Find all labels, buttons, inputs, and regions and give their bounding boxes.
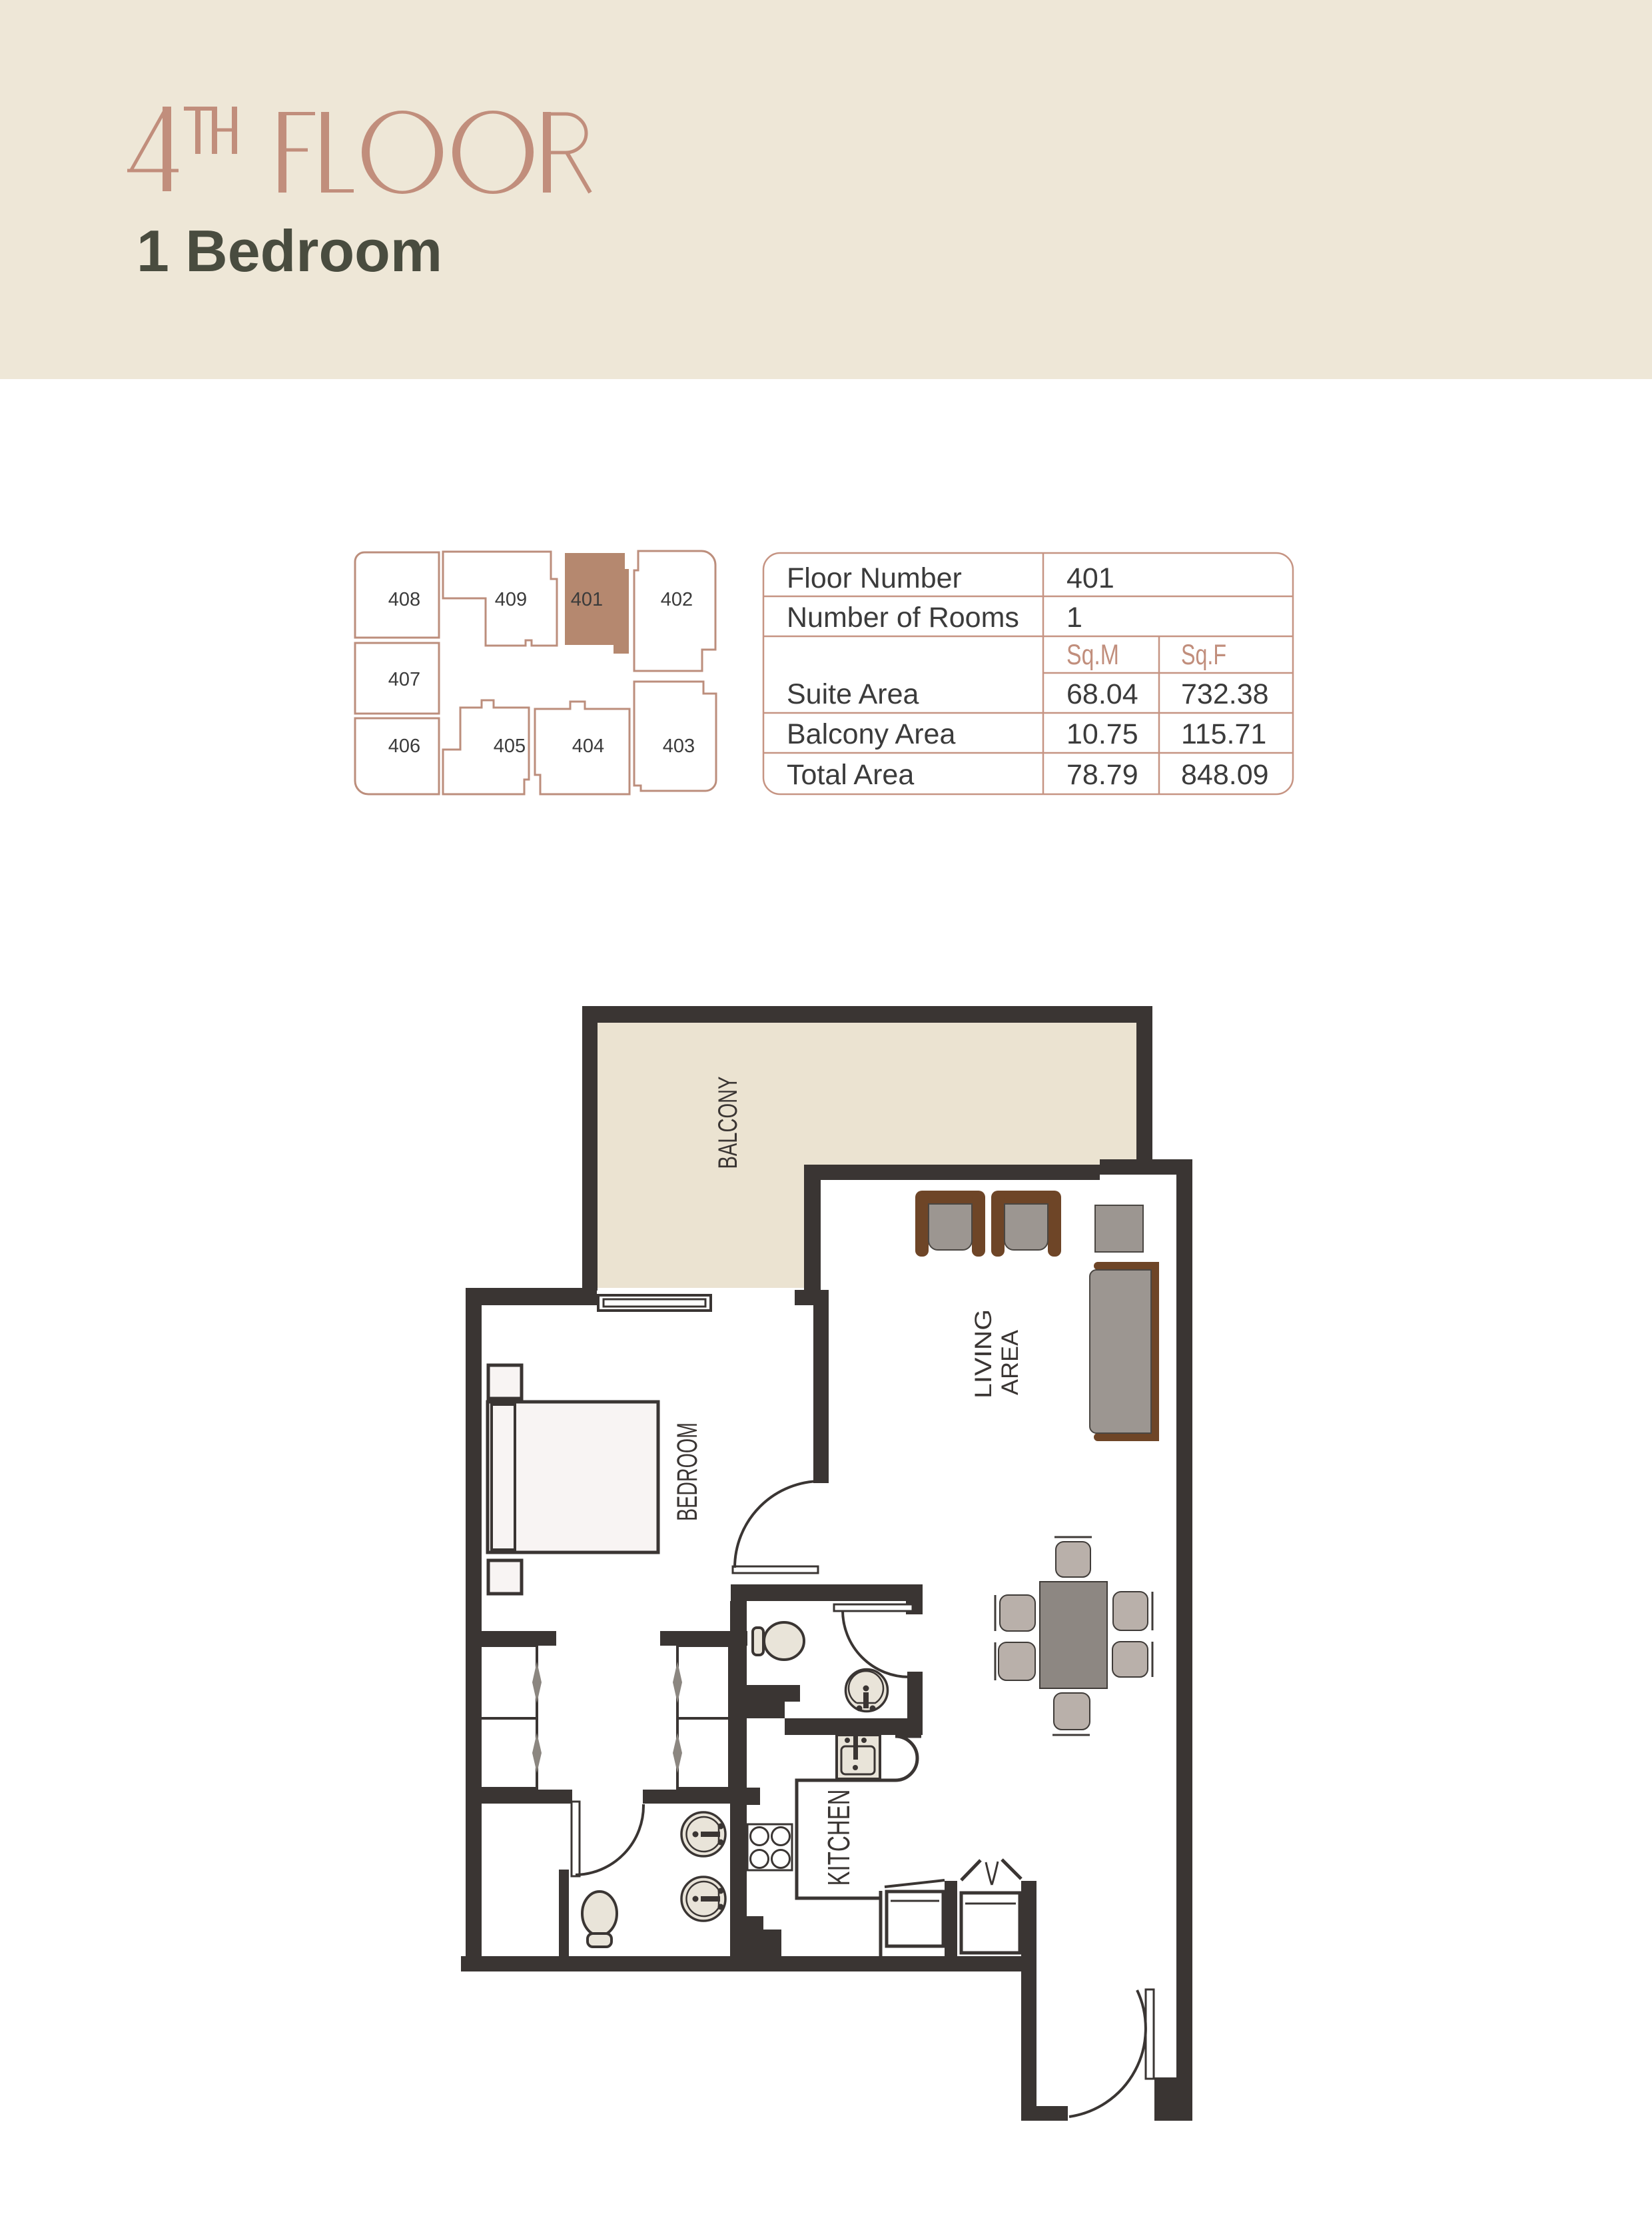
svg-text:1: 1 bbox=[1066, 602, 1082, 634]
svg-text:115.71: 115.71 bbox=[1181, 718, 1266, 750]
svg-text:1 Bedroom: 1 Bedroom bbox=[137, 218, 442, 284]
svg-text:404: 404 bbox=[572, 736, 604, 757]
svg-text:409: 409 bbox=[495, 589, 527, 610]
svg-text:10.75: 10.75 bbox=[1066, 718, 1138, 750]
svg-text:Sq.F: Sq.F bbox=[1181, 639, 1226, 671]
svg-text:Balcony Area: Balcony Area bbox=[787, 718, 955, 750]
svg-text:401: 401 bbox=[1066, 562, 1114, 594]
svg-text:403: 403 bbox=[663, 736, 695, 757]
svg-text:KITCHEN: KITCHEN bbox=[821, 1790, 856, 1886]
svg-text:78.79: 78.79 bbox=[1066, 759, 1138, 791]
svg-text:848.09: 848.09 bbox=[1181, 759, 1269, 791]
svg-text:BEDROOM: BEDROOM bbox=[671, 1422, 703, 1521]
svg-text:407: 407 bbox=[388, 669, 420, 690]
svg-text:Total Area: Total Area bbox=[787, 759, 914, 791]
svg-text:LIVING: LIVING bbox=[971, 1309, 997, 1398]
svg-text:401: 401 bbox=[571, 589, 603, 610]
svg-text:Sq.M: Sq.M bbox=[1066, 639, 1119, 671]
svg-text:Suite Area: Suite Area bbox=[787, 678, 919, 710]
svg-text:68.04: 68.04 bbox=[1066, 678, 1138, 710]
svg-text:405: 405 bbox=[494, 736, 526, 757]
svg-text:406: 406 bbox=[388, 736, 420, 757]
svg-text:AREA: AREA bbox=[997, 1329, 1023, 1395]
svg-text:402: 402 bbox=[661, 589, 693, 610]
svg-text:Number of Rooms: Number of Rooms bbox=[787, 602, 1019, 634]
svg-text:408: 408 bbox=[388, 589, 420, 610]
svg-text:Floor Number: Floor Number bbox=[787, 562, 962, 594]
svg-text:732.38: 732.38 bbox=[1181, 678, 1269, 710]
svg-text:BALCONY: BALCONY bbox=[713, 1077, 743, 1169]
